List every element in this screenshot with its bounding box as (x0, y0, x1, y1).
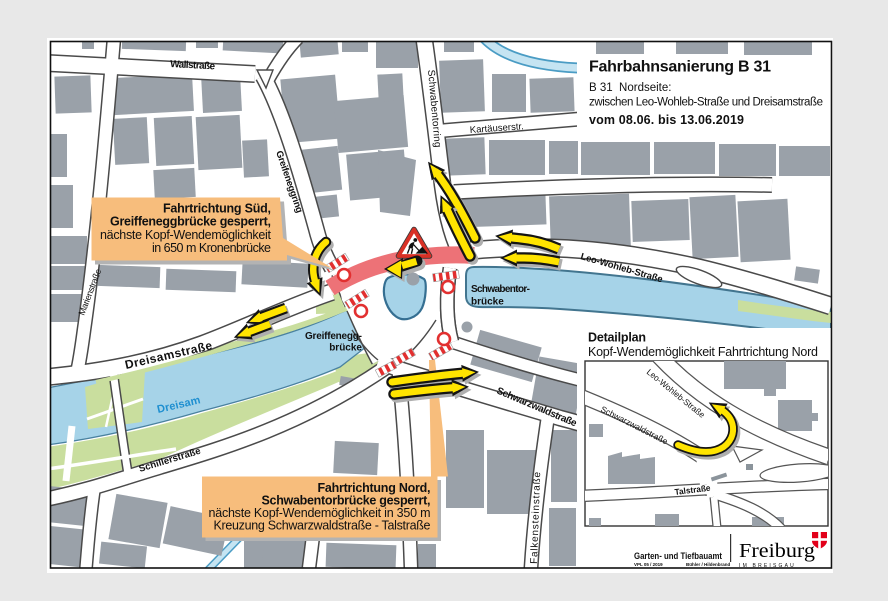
svg-text:nächste Kopf-Wendemöglichkeit: nächste Kopf-Wendemöglichkeit (100, 228, 272, 242)
svg-text:Greiffenegg-: Greiffenegg- (305, 331, 362, 342)
svg-text:Freiburg: Freiburg (739, 540, 815, 562)
svg-text:Kreuzung Schwarzwaldstraße - T: Kreuzung Schwarzwaldstraße - Talstraße (214, 519, 431, 533)
svg-text:in 650 m Kronenbrücke: in 650 m Kronenbrücke (152, 241, 271, 255)
svg-text:zwischen Leo-Wohleb-Straße und: zwischen Leo-Wohleb-Straße und Dreisamst… (589, 97, 823, 109)
svg-text:Garten- und Tiefbauamt: Garten- und Tiefbauamt (634, 551, 722, 561)
svg-text:vom 08.06. bis 13.06.2019: vom 08.06. bis 13.06.2019 (589, 113, 744, 127)
svg-text:Fahrtrichtung Süd,: Fahrtrichtung Süd, (163, 202, 271, 216)
svg-text:Greiffeneggbrücke gesperrt,: Greiffeneggbrücke gesperrt, (110, 215, 271, 229)
svg-text:Schwabentor-: Schwabentor- (471, 284, 530, 295)
svg-text:Kopf-Wendemöglichkeit Fahrtric: Kopf-Wendemöglichkeit Fahrtrichtung Nord (588, 345, 818, 359)
svg-text:brücke: brücke (329, 343, 362, 354)
svg-text:B 31 Nordseite:: B 31 Nordseite: (589, 82, 671, 94)
svg-text:Fahrbahnsanierung B 31: Fahrbahnsanierung B 31 (589, 59, 771, 76)
svg-text:brücke: brücke (471, 297, 504, 308)
svg-text:Bühler / Hildenbrand: Bühler / Hildenbrand (686, 562, 731, 567)
svg-text:VPL 05 / 2019: VPL 05 / 2019 (634, 562, 663, 567)
svg-text:Detailplan: Detailplan (588, 331, 646, 345)
